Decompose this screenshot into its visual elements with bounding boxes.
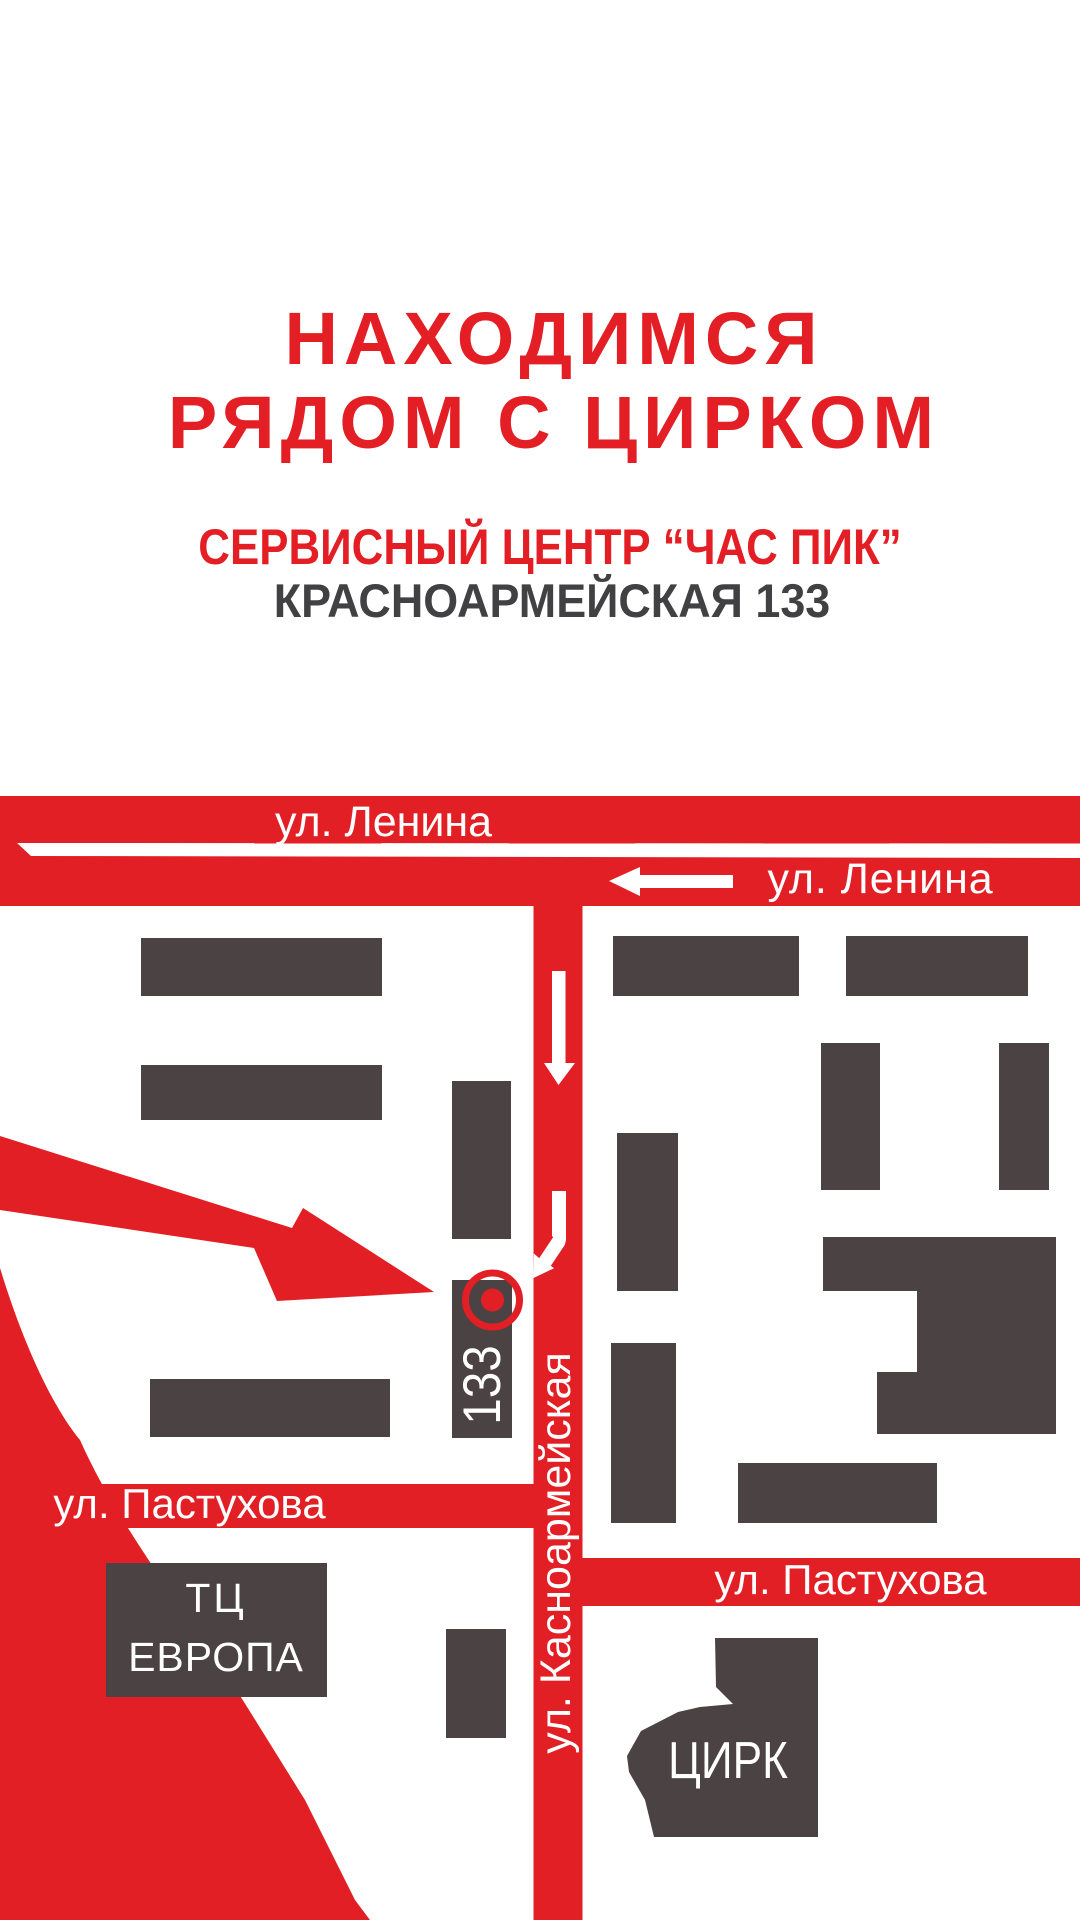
svg-text:133: 133 <box>452 1345 512 1425</box>
svg-text:ул. Пастухова: ул. Пастухова <box>714 1556 987 1603</box>
svg-text:ТЦ: ТЦ <box>185 1575 246 1621</box>
svg-text:ЕВРОПА: ЕВРОПА <box>128 1634 304 1680</box>
svg-text:ул. Ленина: ул. Ленина <box>275 798 492 846</box>
svg-text:ул. Касноармейская: ул. Касноармейская <box>532 1352 580 1753</box>
svg-text:ул. Пастухова: ул. Пастухова <box>53 1480 326 1527</box>
svg-text:ул. Ленина: ул. Ленина <box>767 855 993 903</box>
svg-text:ЦИРК: ЦИРК <box>668 1732 788 1790</box>
